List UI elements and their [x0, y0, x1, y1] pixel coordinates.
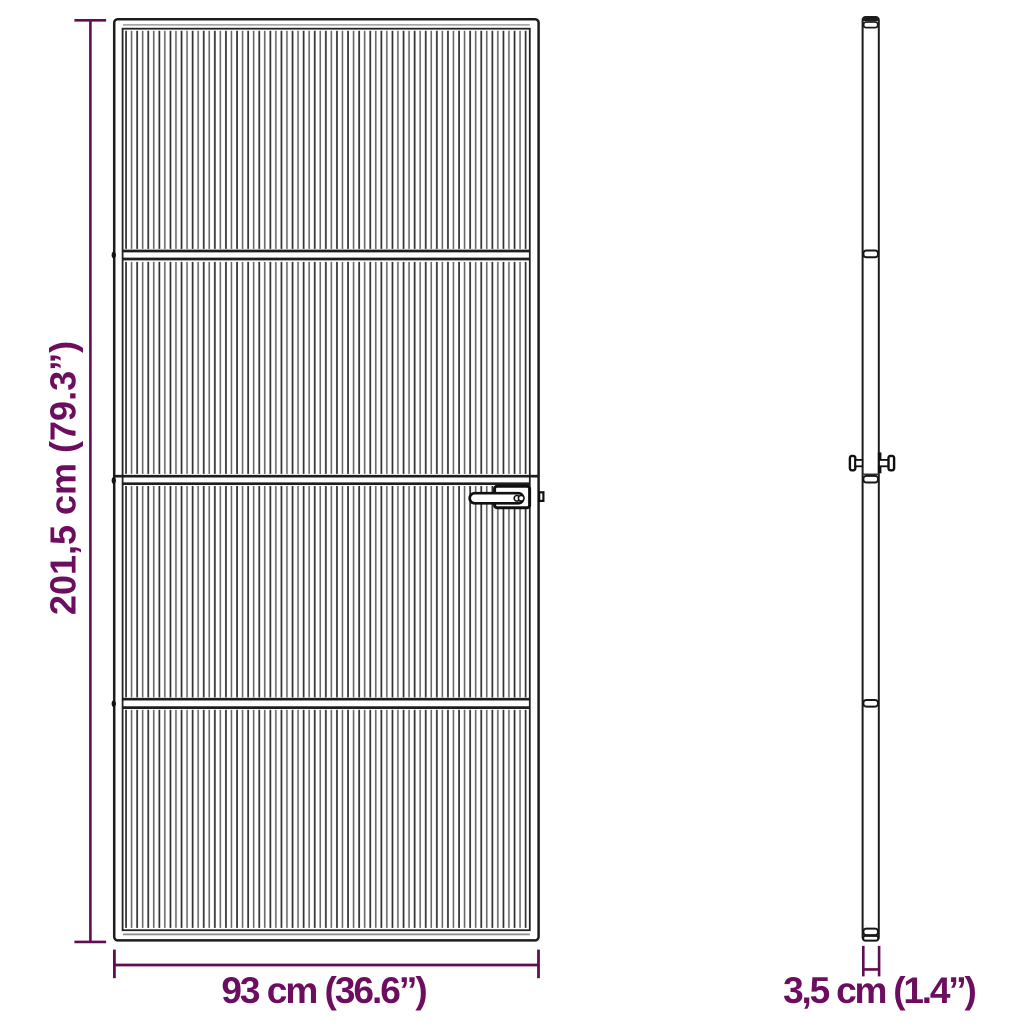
svg-text:93 cm (36.6”): 93 cm (36.6”)	[221, 970, 426, 1011]
svg-text:3,5 cm (1.4”): 3,5 cm (1.4”)	[783, 970, 975, 1011]
svg-text:201,5 cm (79.3”): 201,5 cm (79.3”)	[43, 341, 84, 615]
